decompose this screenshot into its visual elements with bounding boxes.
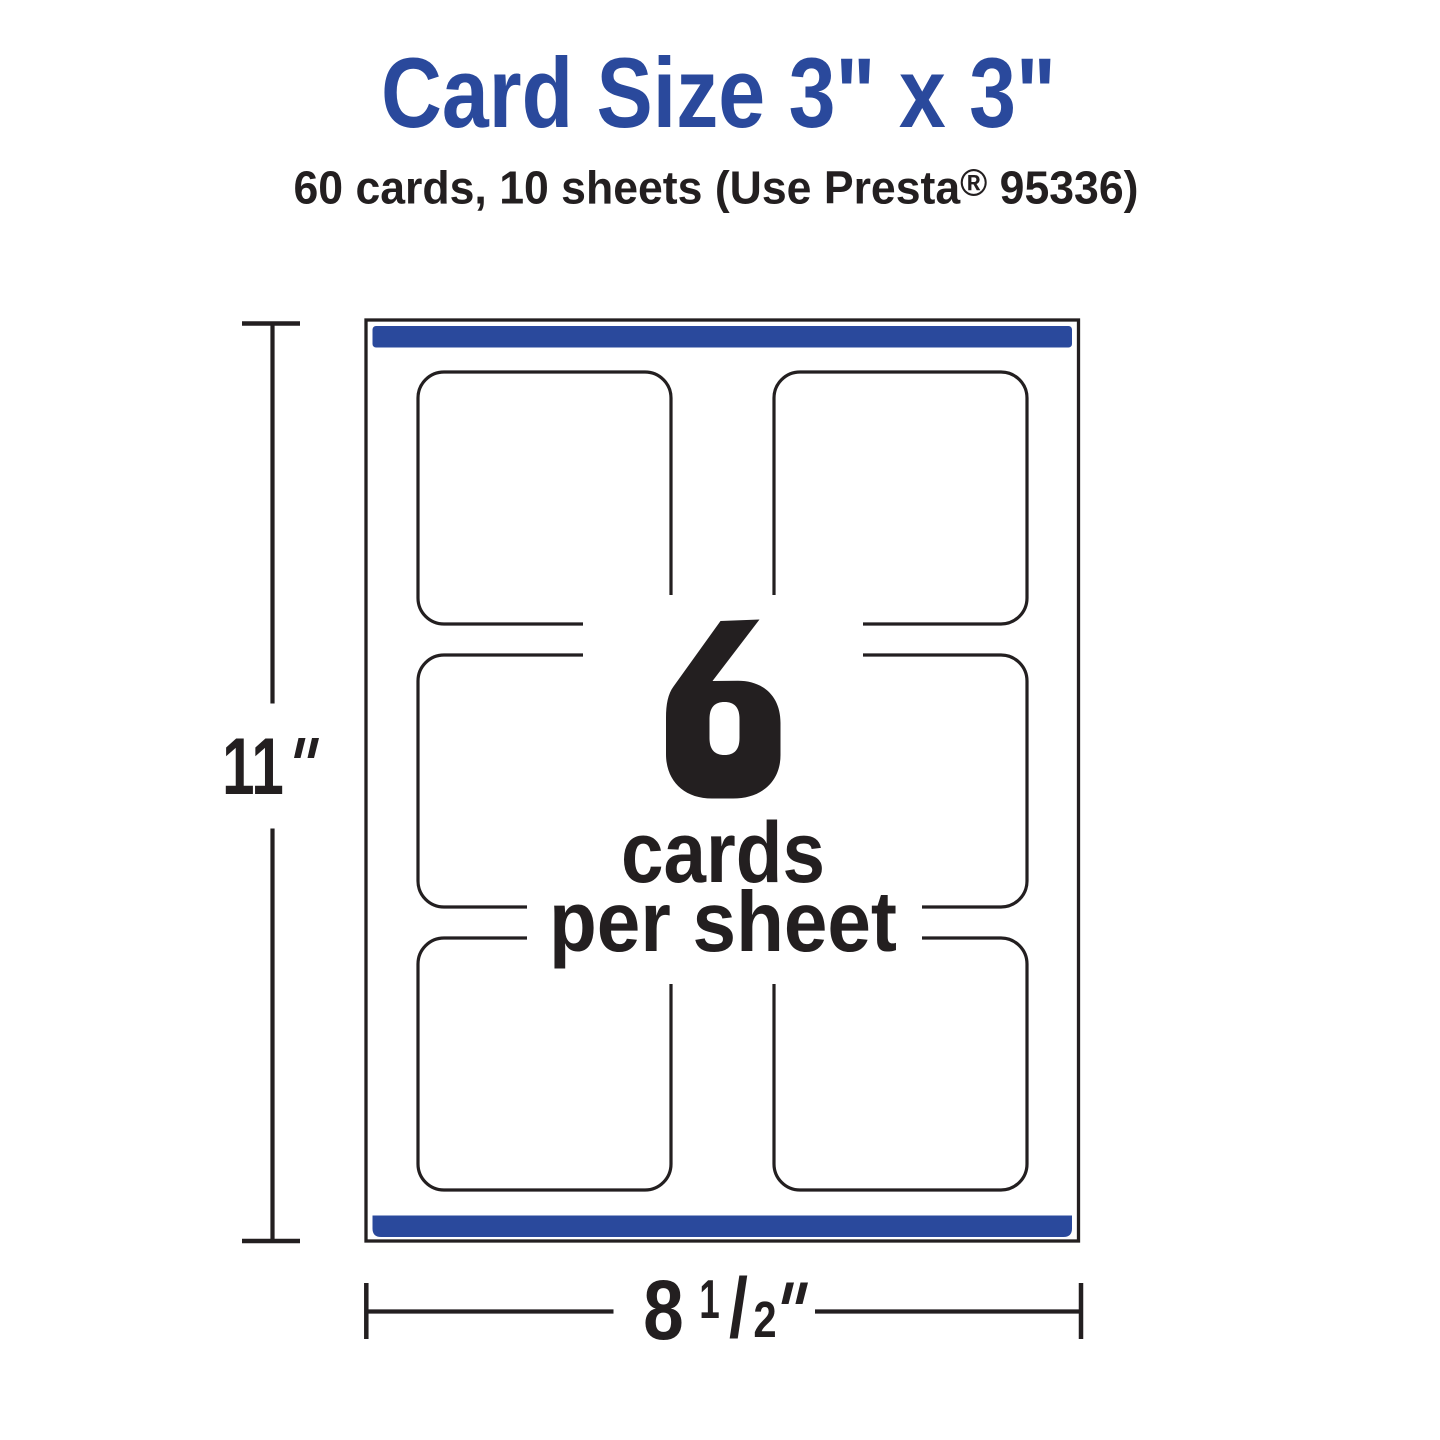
svg-text:8: 8 bbox=[643, 1263, 684, 1357]
svg-text:Card Size 3" x 3": Card Size 3" x 3" bbox=[381, 37, 1056, 148]
svg-text:1: 1 bbox=[699, 1269, 719, 1330]
svg-text:/: / bbox=[729, 1262, 748, 1355]
svg-text:11: 11 bbox=[222, 721, 284, 812]
svg-text:60 cards, 10 sheets (Use Prest: 60 cards, 10 sheets (Use Presta® 95336) bbox=[294, 162, 1139, 214]
svg-text:2: 2 bbox=[753, 1291, 776, 1348]
svg-text:per sheet: per sheet bbox=[549, 875, 897, 970]
